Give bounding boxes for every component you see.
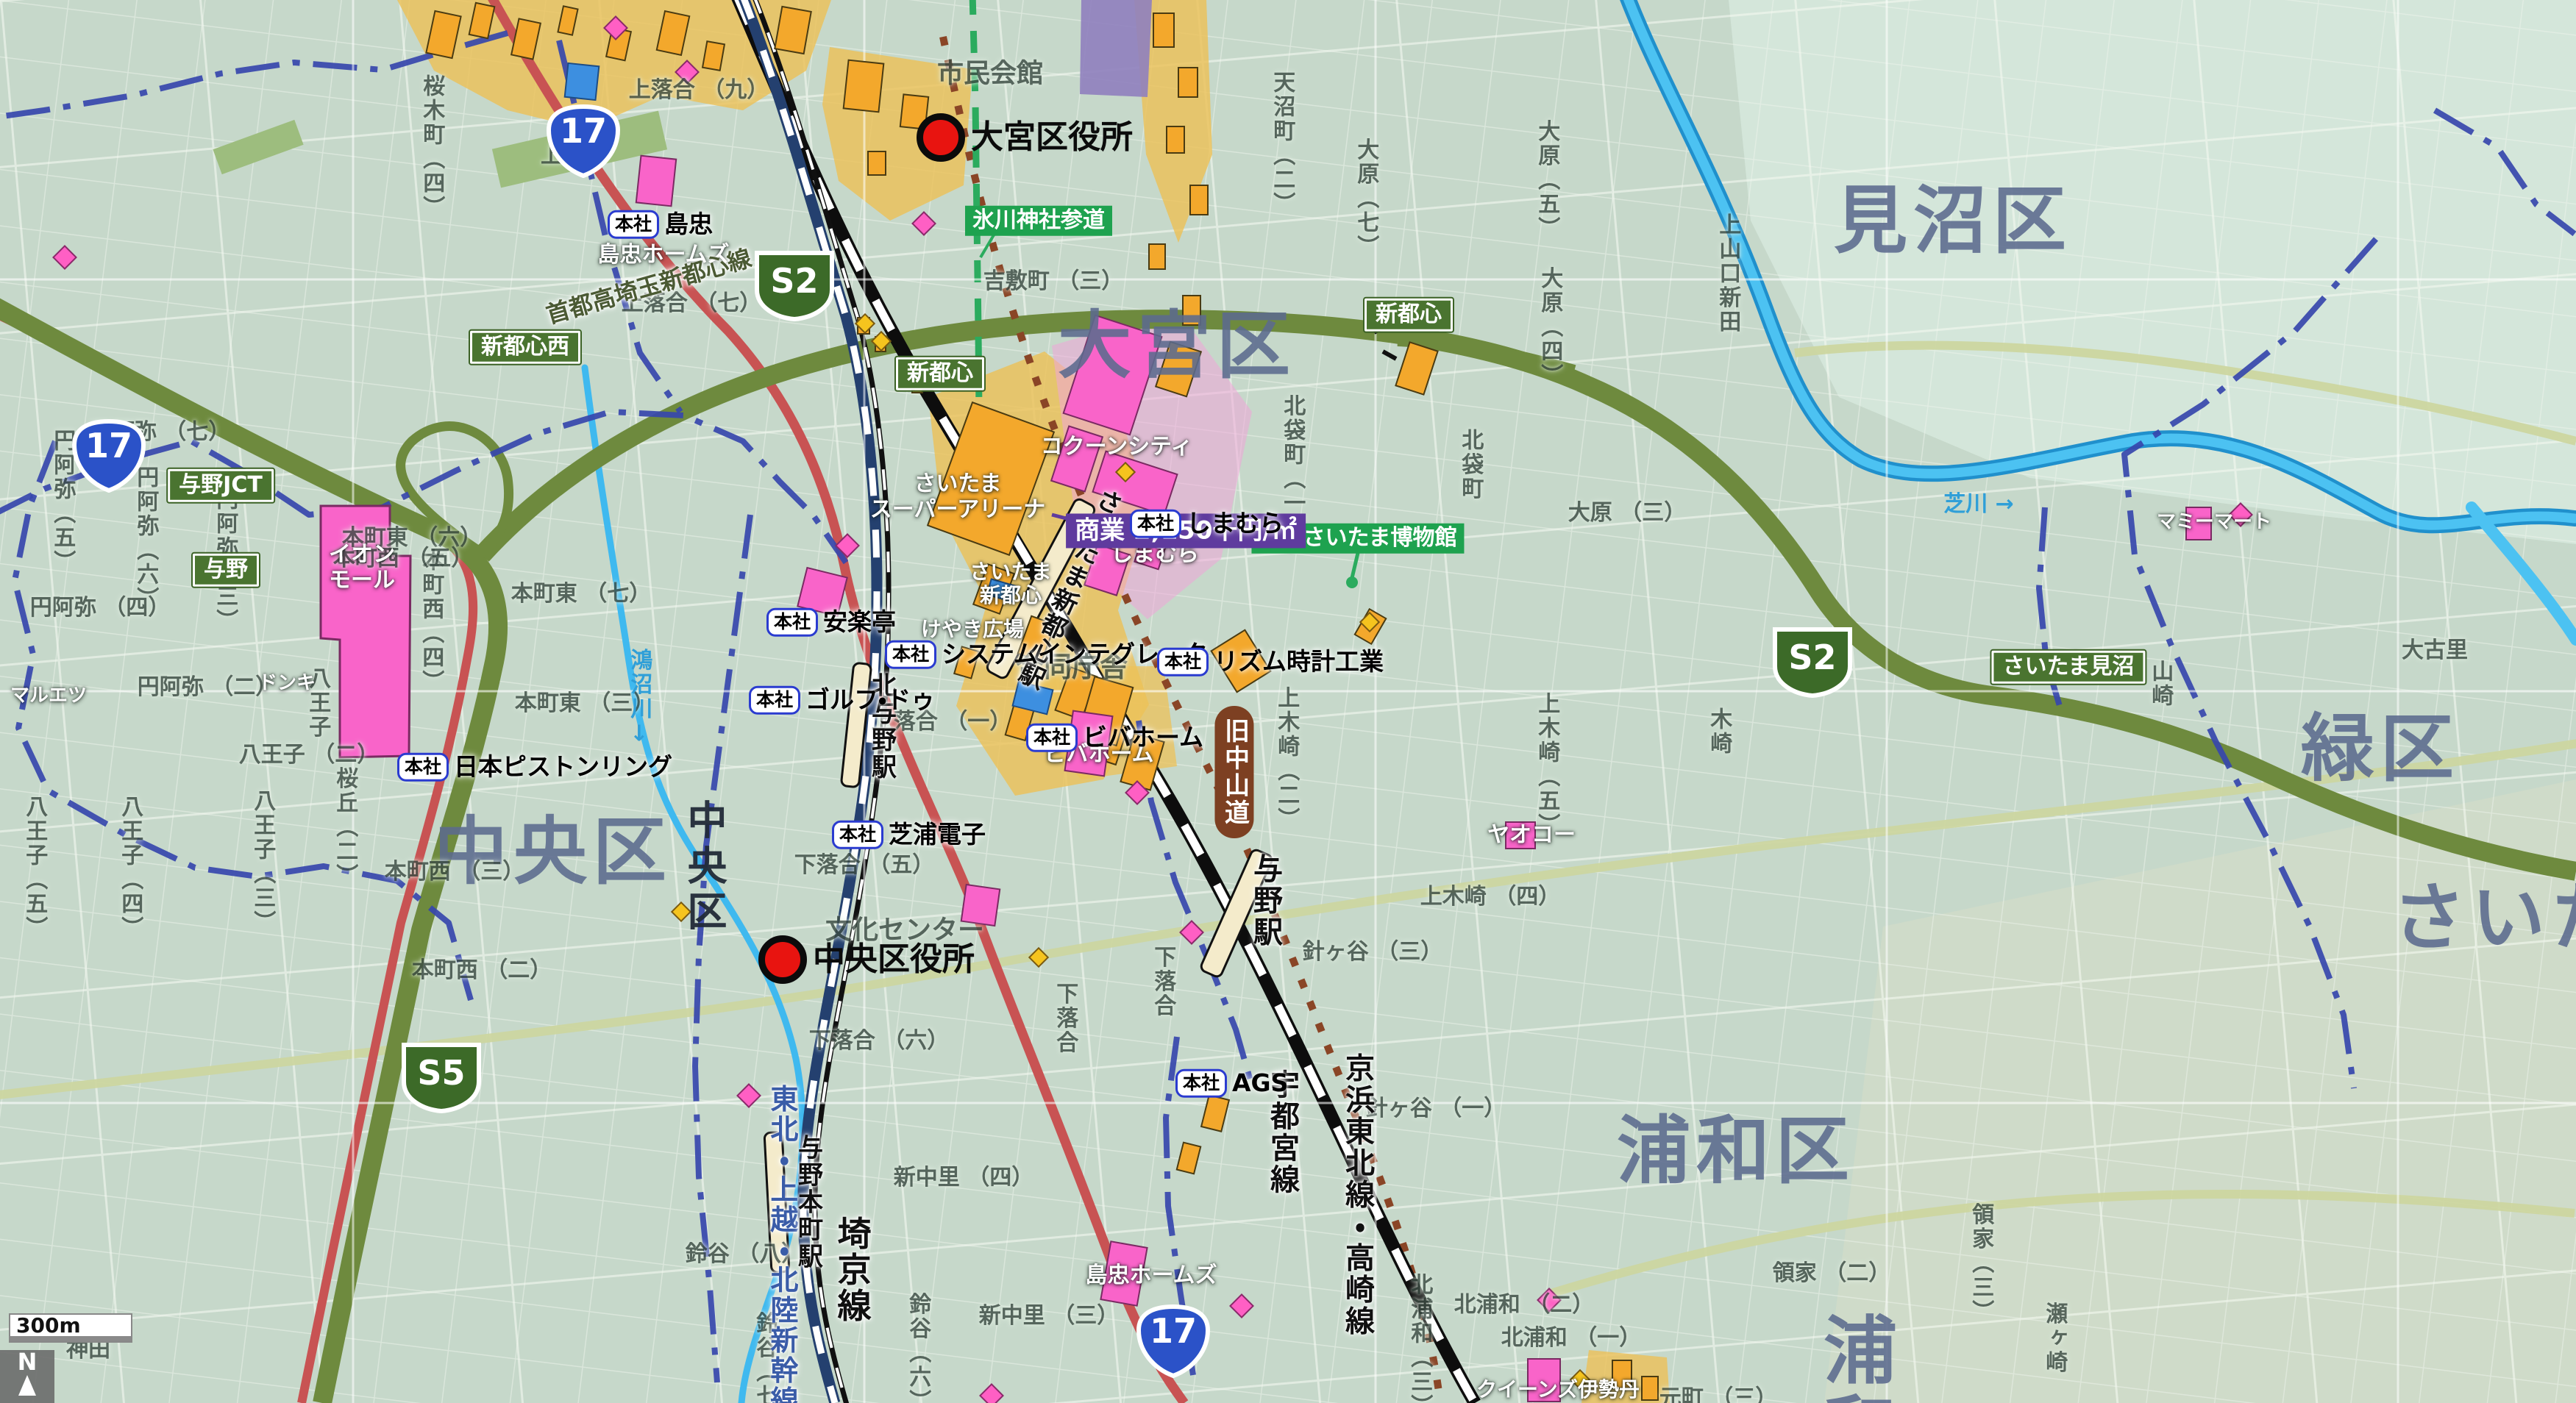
north-label: N (0, 1350, 54, 1374)
building-pink (2186, 507, 2211, 540)
building-orange (1167, 126, 1184, 153)
building-orange (1149, 244, 1165, 269)
building-pink (1065, 711, 1113, 777)
poi-dot (1346, 576, 1358, 588)
building-orange (1642, 1377, 1658, 1400)
north-indicator: N (0, 1350, 54, 1403)
building-pink (636, 156, 676, 207)
map-canvas (0, 0, 2576, 1403)
scale-bar-label: 300m (10, 1315, 131, 1337)
building-orange (1183, 296, 1200, 325)
scale-bar-rule (10, 1336, 131, 1341)
building-orange (1178, 68, 1198, 97)
building-orange (1190, 185, 1208, 215)
building-orange (1612, 1360, 1632, 1388)
scale-bar: 300m (9, 1313, 132, 1343)
landuse-zone (1080, 0, 1152, 97)
building-pink (1506, 822, 1535, 849)
building-orange (1153, 13, 1174, 47)
map-viewport[interactable]: 大宮区見沼区中央区浦和区緑区さいたま浦和中央区市民会館天沼町（二）大原（七）大原… (0, 0, 2576, 1403)
building-orange (775, 7, 811, 54)
north-arrow-icon (18, 1375, 36, 1396)
building-orange (868, 151, 886, 175)
building-pink (961, 885, 1000, 926)
building-orange (702, 41, 725, 71)
building-orange (844, 60, 884, 113)
building-orange (900, 94, 928, 129)
building-blue (565, 63, 599, 100)
building-pink (1528, 1359, 1560, 1402)
